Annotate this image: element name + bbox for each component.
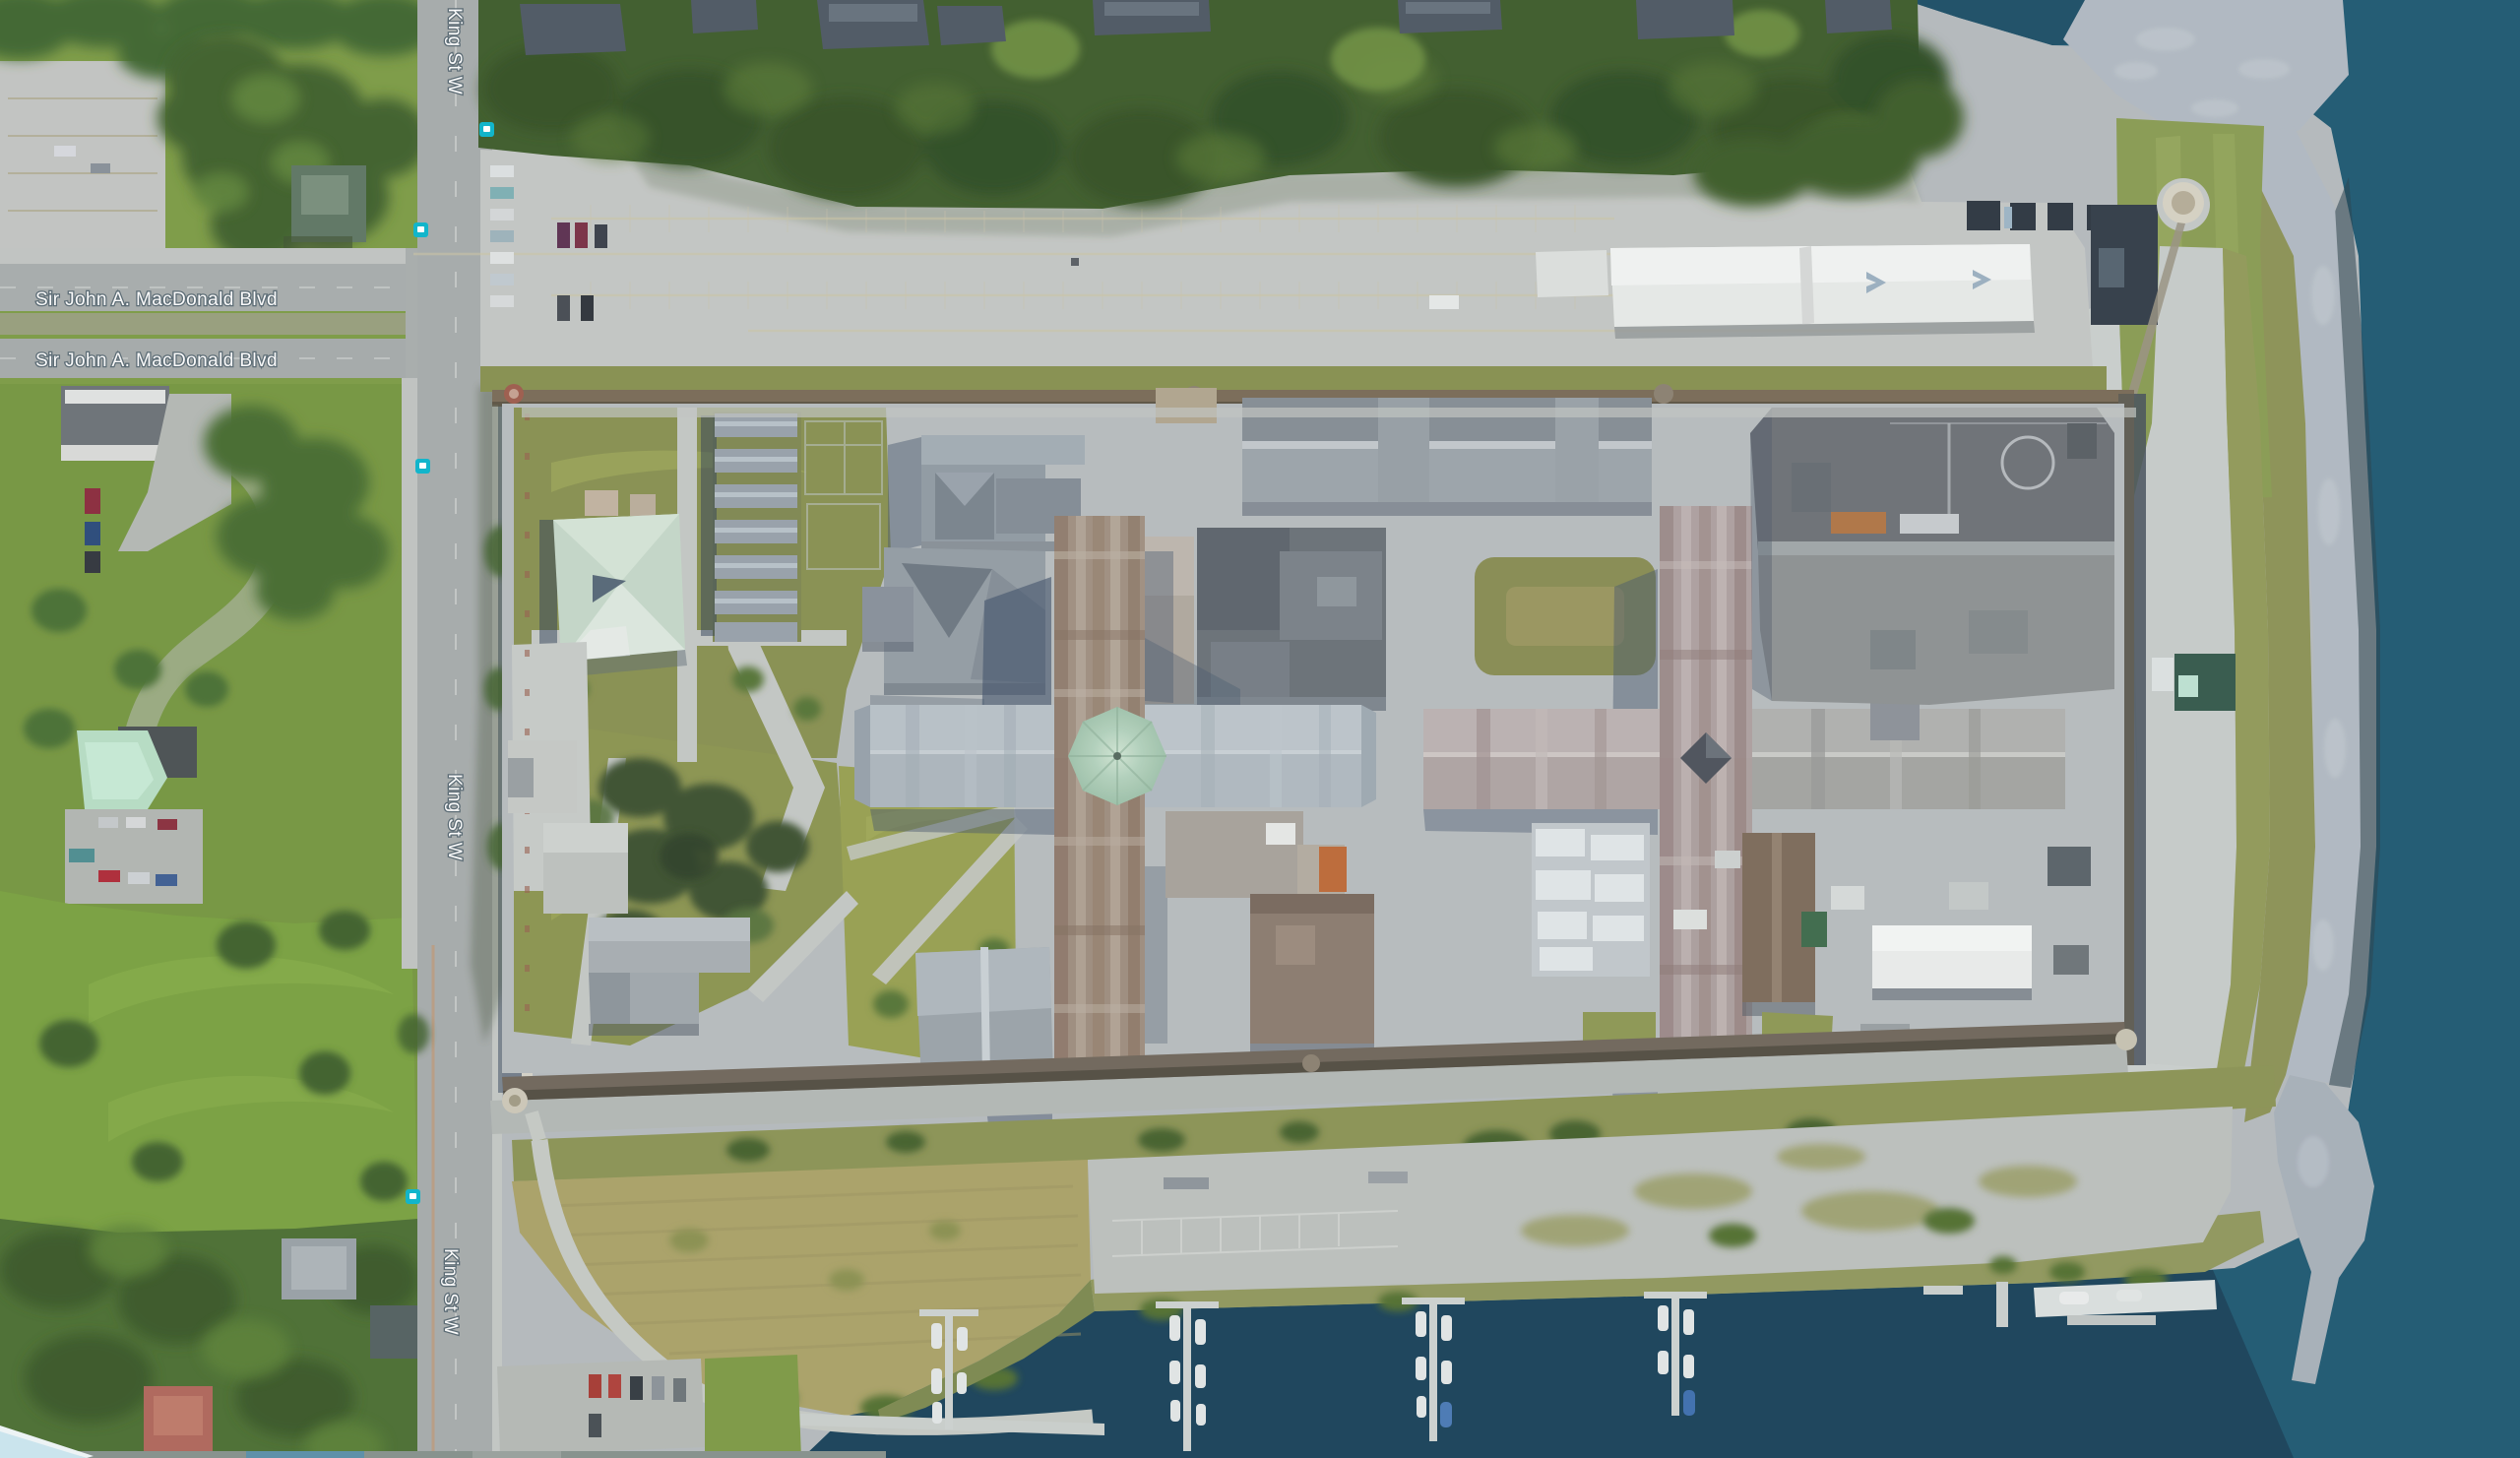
svg-text:King St W: King St W (444, 774, 465, 860)
svg-text:Sir John A. MacDonald Blvd: Sir John A. MacDonald Blvd (35, 350, 278, 371)
svg-text:Sir John A. MacDonald Blvd: Sir John A. MacDonald Blvd (35, 289, 278, 310)
svg-text:King St W: King St W (440, 1248, 461, 1335)
svg-text:King St W: King St W (444, 8, 465, 95)
